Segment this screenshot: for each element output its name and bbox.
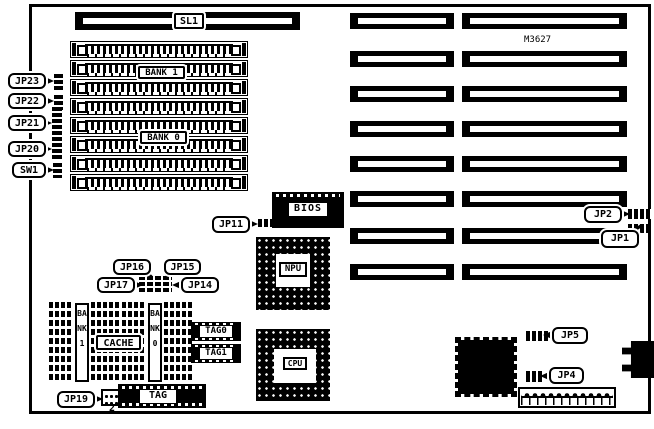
simm-end-cap: [72, 138, 76, 151]
jp19-pin2-label: 2: [109, 403, 115, 414]
slot-keyway: [358, 233, 446, 239]
chipset-qfp: [455, 337, 517, 397]
jp21-callout: JP21: [8, 115, 46, 131]
simm-socket: [70, 79, 248, 96]
simm-clip: [77, 140, 87, 151]
simm-pins: [85, 158, 233, 168]
simm-contacts: [87, 168, 231, 171]
chipset-qfp-body: [458, 340, 514, 394]
simm-clip: [231, 178, 241, 189]
simm-end-cap: [242, 62, 246, 75]
jp2-pointer: [621, 210, 630, 218]
simm-pins: [85, 82, 233, 92]
jp14-callout: JP14: [181, 277, 219, 293]
jp4-pointer: [540, 372, 549, 380]
isa-slot: [462, 264, 627, 280]
jp23-jumper: [54, 74, 63, 90]
isa-slot: [462, 86, 627, 102]
simm-pins: [85, 101, 233, 111]
isa-slot: [350, 156, 454, 172]
simm-end-cap: [242, 157, 246, 170]
isa-slot: [350, 121, 454, 137]
jp11-callout: JP11: [212, 216, 250, 233]
slot-keyway: [470, 91, 619, 97]
simm-pins: [85, 177, 233, 187]
simm-socket: [70, 155, 248, 172]
tag0-label: TAG0: [199, 325, 233, 338]
simm-contacts: [87, 54, 231, 57]
isa-slot: [350, 191, 454, 207]
npu-label: NPU: [279, 262, 307, 277]
simm-end-cap: [72, 176, 76, 189]
power-connector-terminals: [521, 396, 613, 405]
cpu-label: CPU: [283, 357, 307, 370]
jp22-pointer: [45, 97, 54, 105]
jp11-jumper: [258, 219, 274, 227]
simm-clip: [231, 159, 241, 170]
simm-end-cap: [72, 157, 76, 170]
simm-socket: [70, 98, 248, 115]
slot-keyway: [470, 196, 619, 202]
jp17-pointer: [134, 281, 143, 289]
jp5-pointer: [543, 331, 552, 339]
simm-clip: [231, 45, 241, 56]
simm-contacts: [87, 187, 231, 190]
simm-clip: [77, 159, 87, 170]
isa-slot: [350, 264, 454, 280]
tag1-label: TAG1: [199, 347, 233, 360]
jp23-callout: JP23: [8, 73, 46, 89]
slot-keyway: [470, 161, 619, 167]
simm-pins: [85, 44, 233, 54]
jp16-callout: JP16: [113, 259, 151, 275]
isa-slot: [462, 51, 627, 67]
slot-keyway: [358, 161, 446, 167]
sw1-callout: SW1: [12, 162, 46, 178]
simm-clip: [231, 102, 241, 113]
simm-clip: [77, 178, 87, 189]
simm-clip: [231, 140, 241, 151]
model-number: M3627: [524, 35, 551, 45]
simm-end-cap: [242, 138, 246, 151]
slot-keyway: [470, 126, 619, 132]
simm-contacts: [87, 92, 231, 95]
bios-pin-row: [276, 194, 340, 197]
simm-end-cap: [72, 119, 76, 132]
simm-clip: [77, 121, 87, 132]
isa-slot: [462, 121, 627, 137]
jp15-callout: JP15: [164, 259, 201, 275]
simm-end-cap: [242, 119, 246, 132]
jp5-callout: JP5: [552, 327, 588, 344]
tag-label: TAG: [139, 389, 177, 404]
simm-pins: [85, 120, 233, 130]
bank0-label: BANK 0: [140, 131, 187, 144]
slot-keyway: [470, 269, 619, 275]
simm-end-cap: [242, 81, 246, 94]
slot-keyway: [358, 56, 446, 62]
jp22-callout: JP22: [8, 93, 46, 109]
sl1-label: SL1: [174, 13, 204, 29]
simm-clip: [231, 121, 241, 132]
jp19-pointer: [94, 395, 103, 403]
simm-socket: [70, 174, 248, 191]
simm-clip: [77, 102, 87, 113]
jp21-jumper: [52, 107, 62, 138]
jp2-jumper: [628, 209, 652, 219]
simm-clip: [77, 64, 87, 75]
isa-slot: [462, 13, 627, 29]
jp14-pointer: [172, 281, 181, 289]
cache-bank0-label: BANK 0: [148, 303, 162, 382]
simm-clip: [231, 64, 241, 75]
simm-contacts: [87, 149, 231, 152]
slot-keyway: [358, 126, 446, 132]
simm-socket: [70, 41, 248, 58]
isa-slot: [350, 13, 454, 29]
simm-clip: [77, 45, 87, 56]
slot-keyway: [358, 18, 446, 24]
simm-end-cap: [72, 100, 76, 113]
simm-end-cap: [242, 43, 246, 56]
cache-label: CACHE: [96, 335, 141, 350]
isa-slot: [350, 86, 454, 102]
jp20-callout: JP20: [8, 141, 46, 157]
simm-end-cap: [242, 100, 246, 113]
bios-label: BIOS: [288, 202, 328, 217]
slot-keyway: [358, 91, 446, 97]
simm-clip: [77, 83, 87, 94]
power-connector: [518, 387, 616, 408]
slot-keyway: [470, 233, 619, 239]
isa-slot: [350, 51, 454, 67]
simm-end-cap: [72, 81, 76, 94]
isa-slot: [462, 191, 627, 207]
simm-clip: [231, 83, 241, 94]
isa-slot: [350, 228, 454, 244]
cache-bank1-label: BANK 1: [75, 303, 89, 382]
bank1-label: BANK 1: [138, 66, 185, 79]
jp2-callout: JP2: [584, 206, 622, 223]
jp19-callout: JP19: [57, 391, 95, 408]
tag0-pin-row: [195, 338, 237, 340]
slot-keyway: [358, 269, 446, 275]
slot-keyway: [470, 56, 619, 62]
sw1-switch: [53, 163, 62, 178]
jp1-callout: JP1: [601, 230, 639, 248]
simm-end-cap: [242, 176, 246, 189]
jp11-pointer: [249, 220, 258, 228]
jp17-callout: JP17: [97, 277, 135, 293]
tag1-pin-row: [195, 360, 237, 362]
slot-keyway: [358, 196, 446, 202]
motherboard-diagram: SL1 BANK 1 BANK 0 JP23 JP22 JP21 JP20 SW…: [0, 0, 654, 429]
jp4-callout: JP4: [549, 367, 584, 384]
jp20-jumper: [52, 137, 62, 161]
slot-keyway: [470, 18, 619, 24]
jp23-pointer: [45, 77, 54, 85]
simm-end-cap: [72, 62, 76, 75]
isa-slot: [462, 156, 627, 172]
simm-end-cap: [72, 43, 76, 56]
simm-contacts: [87, 111, 231, 114]
sw1-pointer: [45, 166, 54, 174]
